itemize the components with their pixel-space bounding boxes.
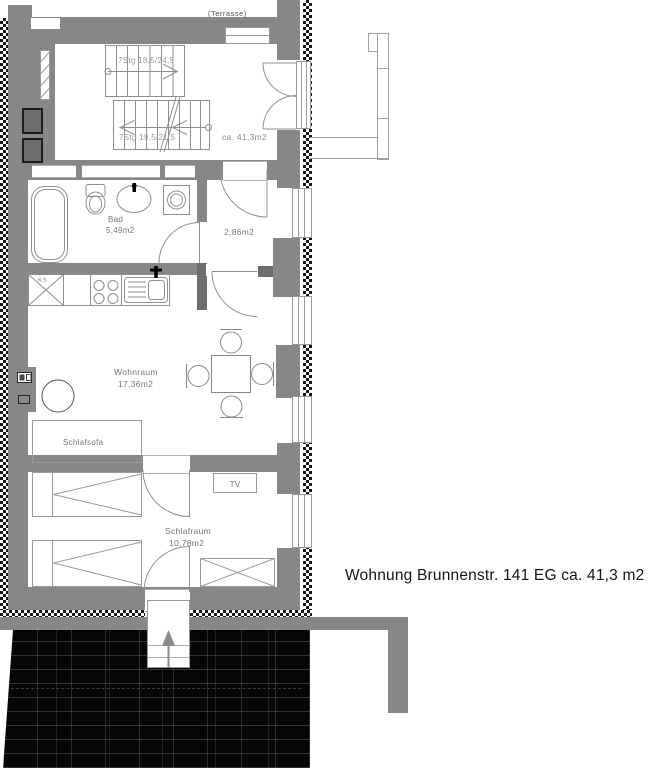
schlafraum-name-label: Schlafraum bbox=[165, 526, 211, 537]
wall-symbol-lower bbox=[19, 396, 30, 404]
schlafraum-area-label: 10,78m2 bbox=[169, 538, 204, 549]
tv-box: TV bbox=[213, 473, 257, 493]
terrace-steps-linework bbox=[147, 630, 190, 668]
hall-area-label: 2,86m2 bbox=[224, 227, 254, 238]
stairs-upper-label: 7Stg 18,5/24,5 bbox=[118, 56, 174, 66]
shaft-hatched bbox=[41, 51, 50, 100]
tv-label: TV bbox=[230, 480, 241, 489]
bathtub bbox=[32, 187, 68, 263]
bad-name-label: Bad bbox=[108, 215, 123, 225]
dining-set bbox=[187, 330, 274, 418]
kitchen-faucet bbox=[150, 266, 162, 278]
schlafsofa-label: Schlafsofa bbox=[63, 438, 103, 448]
washing-machine bbox=[164, 186, 190, 215]
round-side-table bbox=[42, 380, 74, 412]
bad-area-label: 5,49m2 bbox=[106, 226, 134, 236]
plan-linework bbox=[0, 0, 650, 768]
toilet bbox=[86, 185, 105, 215]
wohnraum-area-label: 17,36m2 bbox=[118, 379, 153, 390]
wall-symbol-upper bbox=[18, 373, 32, 383]
kitchen-counter bbox=[29, 275, 170, 306]
bed-1 bbox=[33, 473, 142, 517]
windows bbox=[226, 28, 312, 548]
floor-plan: (Terrasse) bbox=[0, 0, 650, 768]
bath-sink bbox=[117, 183, 151, 213]
schlafsofa-box: Schlafsofa bbox=[32, 420, 142, 463]
fridge-label: KS bbox=[38, 277, 47, 285]
exterior-outline bbox=[310, 34, 389, 160]
plan-title: Wohnung Brunnenstr. 141 EG ca. 41,3 m2 bbox=[345, 567, 644, 585]
stairs-lower-label: 7Stg 19,5/21,5 bbox=[119, 133, 175, 143]
entry-area-label: ca. 41,3m2 bbox=[222, 132, 267, 143]
wardrobe bbox=[201, 559, 275, 587]
bed-2 bbox=[33, 541, 142, 587]
wohnraum-name-label: Wohnraum bbox=[114, 367, 158, 378]
